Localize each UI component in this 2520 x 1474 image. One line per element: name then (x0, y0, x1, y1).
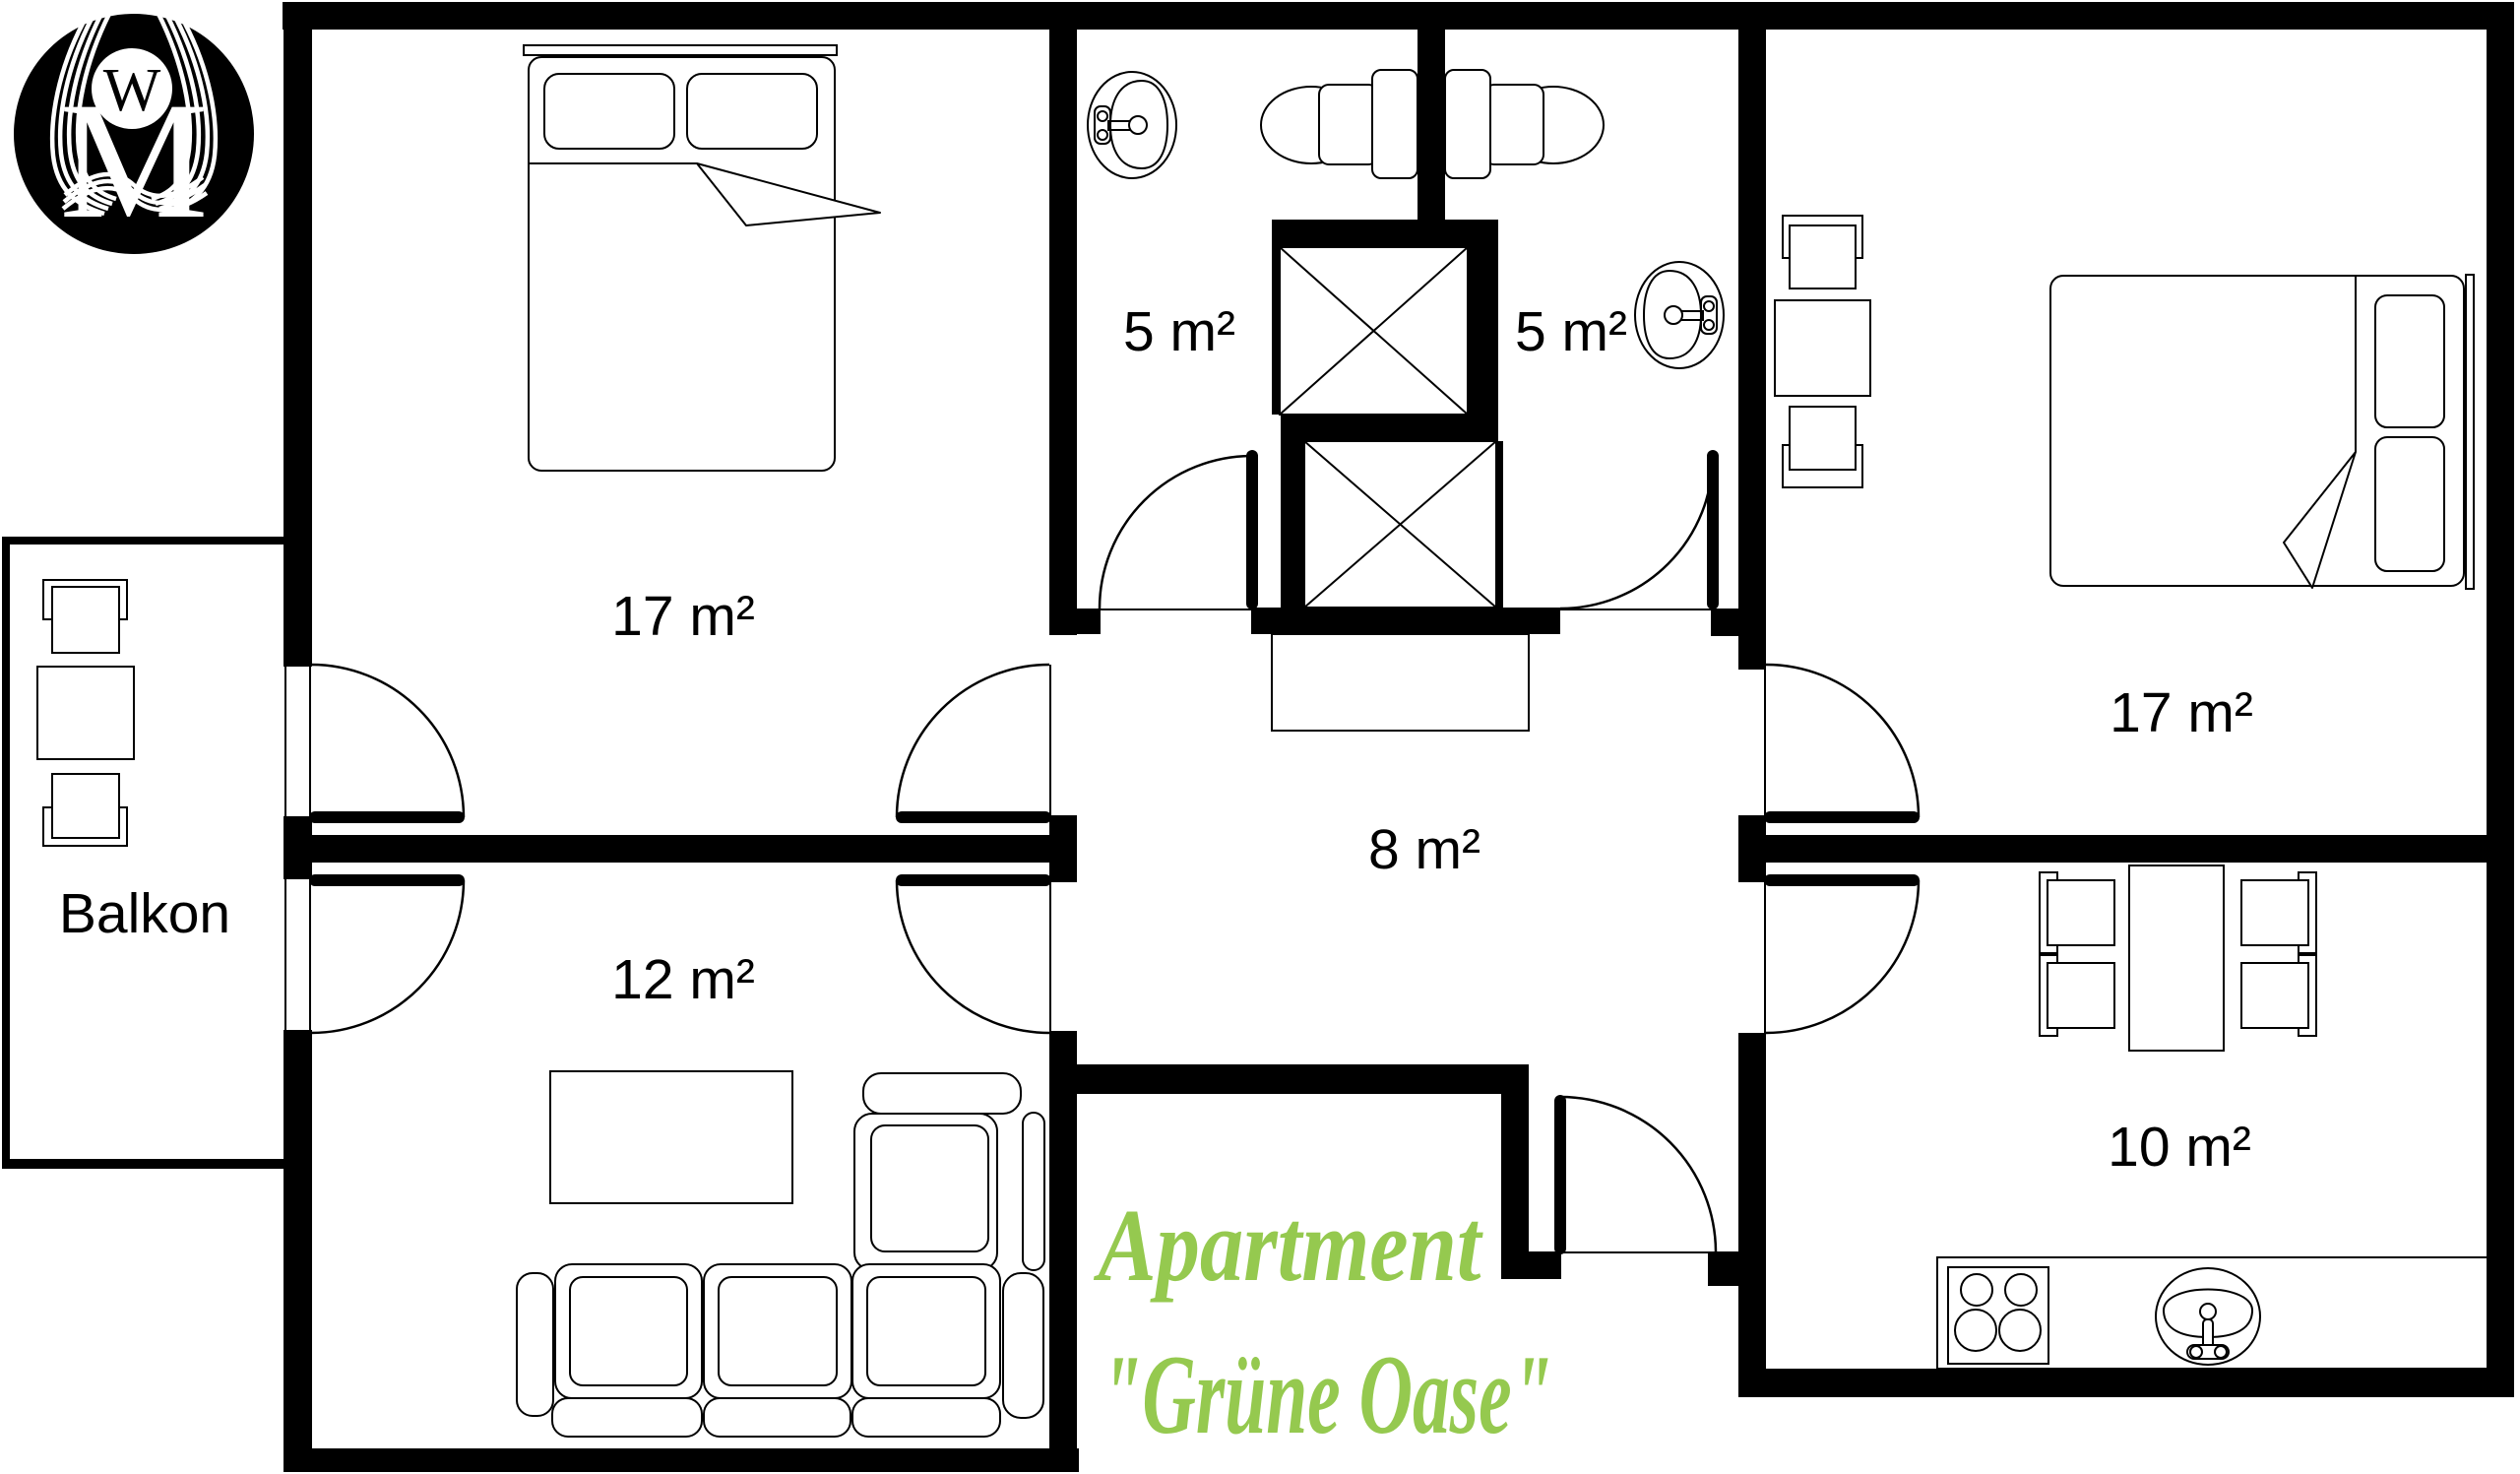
svg-text:17 m²: 17 m² (611, 585, 755, 648)
svg-text:M: M (59, 68, 208, 253)
svg-text:"Grüne Oase": "Grüne Oase" (1102, 1332, 1553, 1457)
svg-text:8 m²: 8 m² (1368, 818, 1480, 881)
svg-text:Apartment: Apartment (1093, 1187, 1482, 1303)
svg-text:17 m²: 17 m² (2110, 681, 2253, 744)
svg-text:5 m²: 5 m² (1123, 300, 1235, 363)
svg-text:5 m²: 5 m² (1515, 300, 1627, 363)
svg-text:10 m²: 10 m² (2108, 1116, 2251, 1179)
svg-text:12 m²: 12 m² (611, 948, 755, 1011)
svg-text:Balkon: Balkon (59, 882, 230, 945)
